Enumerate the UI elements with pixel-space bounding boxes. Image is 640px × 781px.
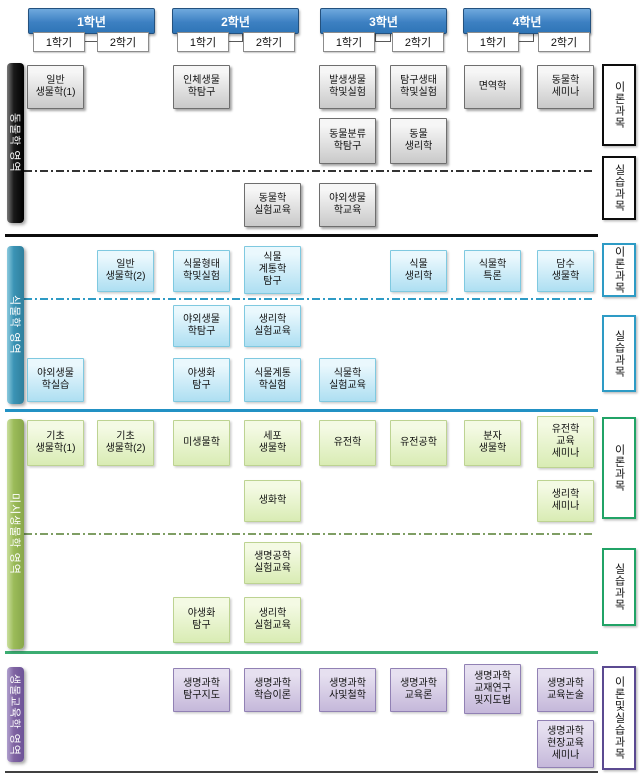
course-box: 식물형태 학및실험 bbox=[173, 250, 230, 292]
section-divider-dashed bbox=[8, 533, 594, 535]
course-box: 동물학 세미나 bbox=[537, 65, 594, 109]
course-box: 유전공학 bbox=[390, 420, 447, 466]
course-box: 생리학 세미나 bbox=[537, 480, 594, 522]
course-box: 생명과학 교육론 bbox=[390, 668, 447, 712]
semester-box: 1학기 bbox=[467, 32, 519, 52]
course-box: 발생생물 학및실험 bbox=[319, 65, 376, 109]
course-box: 생화학 bbox=[244, 480, 301, 522]
section-bar-micro: 미시생물학 영역 bbox=[7, 419, 24, 649]
semester-box: 2학기 bbox=[97, 32, 149, 52]
course-box: 생명과학 교육논술 bbox=[537, 668, 594, 712]
semester-box: 1학기 bbox=[177, 32, 229, 52]
course-box: 야외생물 학탐구 bbox=[173, 305, 230, 347]
course-box: 탐구생태 학및실험 bbox=[390, 65, 447, 109]
year-header: 4학년 bbox=[463, 8, 591, 34]
course-box: 식물학 실험교육 bbox=[319, 358, 376, 402]
course-box: 생리학 실험교육 bbox=[244, 305, 301, 347]
year-header: 1학년 bbox=[28, 8, 155, 34]
course-box: 생명과학 탐구지도 bbox=[173, 668, 230, 712]
course-box: 식물 생리학 bbox=[390, 250, 447, 292]
year-header: 3학년 bbox=[320, 8, 447, 34]
semester-box: 2학기 bbox=[392, 32, 444, 52]
course-type-label: 이론및실습과목 bbox=[602, 666, 636, 770]
section-divider-dashed bbox=[8, 298, 594, 300]
course-box: 식물학 특론 bbox=[464, 250, 521, 292]
course-box: 일반 생물학(2) bbox=[97, 250, 154, 292]
section-bar-zoology: 동물학 영역 bbox=[7, 63, 24, 223]
course-box: 면역학 bbox=[464, 65, 521, 109]
course-box: 동물학 실험교육 bbox=[244, 183, 301, 227]
course-type-label: 실습과목 bbox=[602, 548, 636, 626]
semester-box: 2학기 bbox=[243, 32, 295, 52]
course-box: 미생물학 bbox=[173, 420, 230, 466]
section-bar-education: 생물교육학 영역 bbox=[7, 667, 24, 762]
course-box: 인체생물 학탐구 bbox=[173, 65, 230, 109]
semester-box: 1학기 bbox=[323, 32, 375, 52]
course-box: 식물 계통학 탐구 bbox=[244, 246, 301, 294]
course-box: 생명과학 현장교육 세미나 bbox=[537, 720, 594, 768]
course-box: 생명공학 실험교육 bbox=[244, 542, 301, 584]
course-box: 야생화 탐구 bbox=[173, 597, 230, 643]
course-type-label: 실습과목 bbox=[602, 315, 636, 392]
course-box: 생리학 실험교육 bbox=[244, 597, 301, 643]
course-type-label: 이론과목 bbox=[602, 243, 636, 297]
section-separator bbox=[5, 651, 598, 654]
course-box: 유전학 bbox=[319, 420, 376, 466]
course-box: 생명과학 학습이론 bbox=[244, 668, 301, 712]
course-box: 야외생물 학실습 bbox=[27, 358, 84, 402]
course-box: 분자 생물학 bbox=[464, 420, 521, 466]
course-type-label: 이론과목 bbox=[602, 417, 636, 519]
course-box: 유전학 교육 세미나 bbox=[537, 416, 594, 468]
course-box: 세포 생물학 bbox=[244, 420, 301, 466]
course-box: 기초 생물학(1) bbox=[27, 420, 84, 466]
section-separator bbox=[5, 234, 598, 237]
course-box: 담수 생물학 bbox=[537, 250, 594, 292]
curriculum-diagram: 1학년1학기2학기2학년1학기2학기3학년1학기2학기4학년1학기2학기 동물학… bbox=[0, 0, 640, 781]
course-type-label: 이론과목 bbox=[602, 64, 636, 146]
course-box: 야외생물 학교육 bbox=[319, 183, 376, 227]
course-box: 동물 생리학 bbox=[390, 118, 447, 164]
section-separator bbox=[5, 409, 598, 412]
section-bar-botany: 식물학 영역 bbox=[7, 246, 24, 404]
semester-box: 2학기 bbox=[538, 32, 590, 52]
course-box: 야생화 탐구 bbox=[173, 358, 230, 402]
course-box: 생명과학 교재연구 및지도법 bbox=[464, 664, 521, 714]
semester-box: 1학기 bbox=[33, 32, 85, 52]
course-box: 기초 생물학(2) bbox=[97, 420, 154, 466]
course-box: 일반 생물학(1) bbox=[27, 65, 84, 109]
course-type-label: 실습과목 bbox=[602, 156, 636, 220]
course-box: 동물분류 학탐구 bbox=[319, 118, 376, 164]
section-divider-dashed bbox=[8, 170, 594, 172]
year-header: 2학년 bbox=[172, 8, 299, 34]
course-box: 생명과학 사및철학 bbox=[319, 668, 376, 712]
section-separator bbox=[5, 771, 598, 773]
course-box: 식물계통 학실험 bbox=[244, 358, 301, 402]
